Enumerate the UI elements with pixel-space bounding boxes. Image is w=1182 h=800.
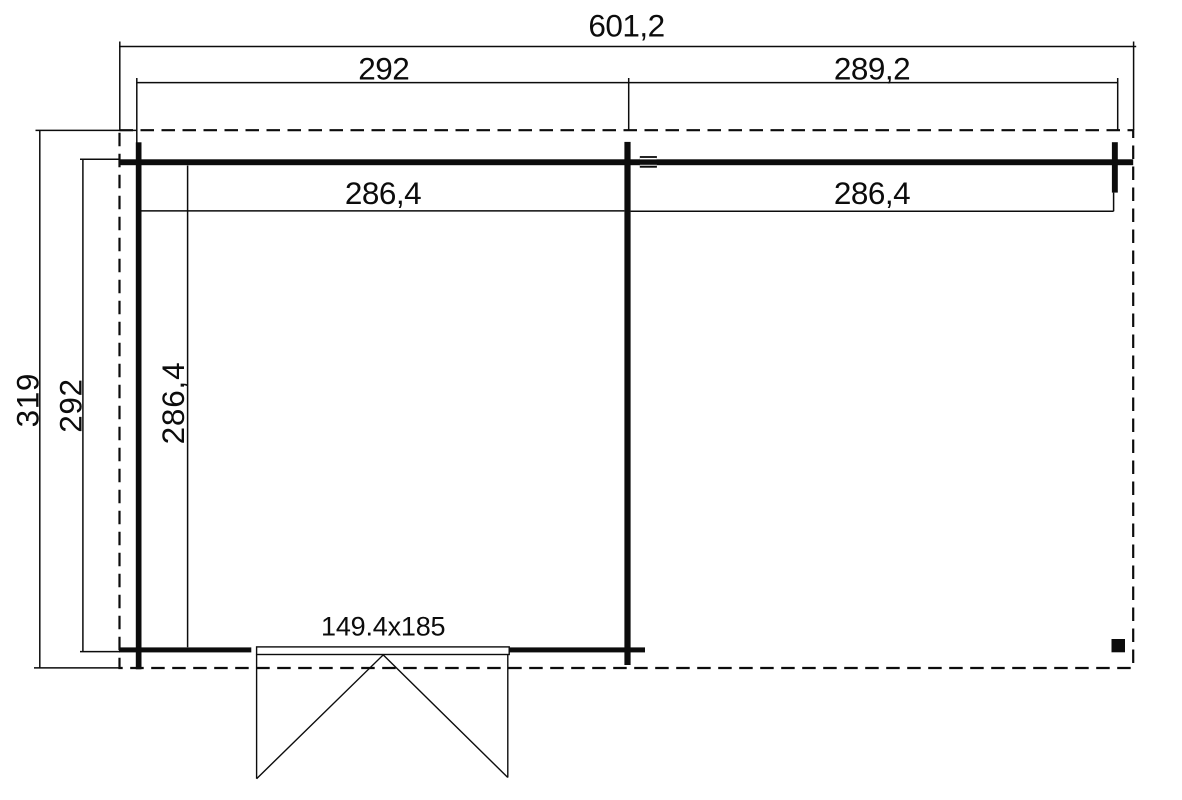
svg-text:292: 292 bbox=[53, 378, 89, 432]
svg-text:292: 292 bbox=[358, 51, 409, 87]
svg-text:601,2: 601,2 bbox=[588, 8, 664, 44]
svg-text:289,2: 289,2 bbox=[834, 51, 910, 87]
svg-text:149.4x185: 149.4x185 bbox=[321, 612, 445, 642]
svg-text:286,4: 286,4 bbox=[155, 362, 191, 445]
svg-text:319: 319 bbox=[10, 373, 46, 427]
svg-text:286,4: 286,4 bbox=[834, 175, 910, 211]
svg-text:286,4: 286,4 bbox=[345, 175, 421, 211]
